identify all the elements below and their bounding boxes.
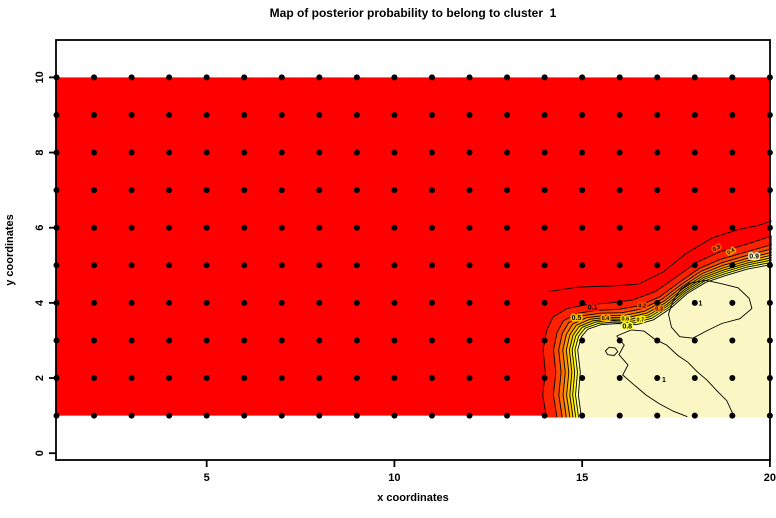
y-tick-label: 8 (34, 149, 46, 155)
x-tick-label: 15 (576, 472, 588, 484)
y-axis: 0246810 (34, 71, 56, 456)
y-tick-label: 2 (34, 375, 46, 381)
contour-label-0.5: 0.5 (572, 315, 582, 322)
y-tick-label: 6 (34, 225, 46, 231)
posterior-probability-map: 0.10.20.30.50.40.60.70.80.30.40.91151015… (0, 0, 776, 518)
contour-label-0.1: 0.1 (588, 305, 598, 312)
contour-label-1: 1 (698, 301, 702, 308)
x-tick-label: 10 (388, 472, 400, 484)
contour-label-0.6: 0.6 (622, 317, 630, 323)
plot-window: 0.10.20.30.50.40.60.70.80.30.40.91151015… (0, 0, 776, 518)
contour-label-0.8: 0.8 (622, 323, 632, 330)
y-tick-label: 0 (34, 450, 46, 456)
y-axis-title: y coordinates (4, 214, 16, 286)
contour-label-0.2: 0.2 (638, 303, 646, 309)
chart-layer: 0.10.20.30.50.40.60.70.80.30.40.91151015… (34, 40, 776, 484)
contour-label-0.7: 0.7 (637, 318, 645, 324)
plot-title: Map of posterior probability to belong t… (270, 6, 557, 20)
contour-label-0.4: 0.4 (602, 316, 611, 322)
y-tick-label: 10 (34, 71, 46, 83)
x-axis: 5101520 (204, 460, 776, 484)
contour-label-0.9: 0.9 (749, 254, 759, 261)
y-tick-label: 4 (34, 299, 46, 306)
contour-label-1: 1 (662, 377, 666, 384)
x-tick-label: 5 (204, 472, 210, 484)
heat-field (57, 77, 772, 417)
x-axis-title: x coordinates (377, 492, 449, 504)
x-tick-label: 20 (764, 472, 776, 484)
contour-label-0.3: 0.3 (655, 306, 663, 312)
